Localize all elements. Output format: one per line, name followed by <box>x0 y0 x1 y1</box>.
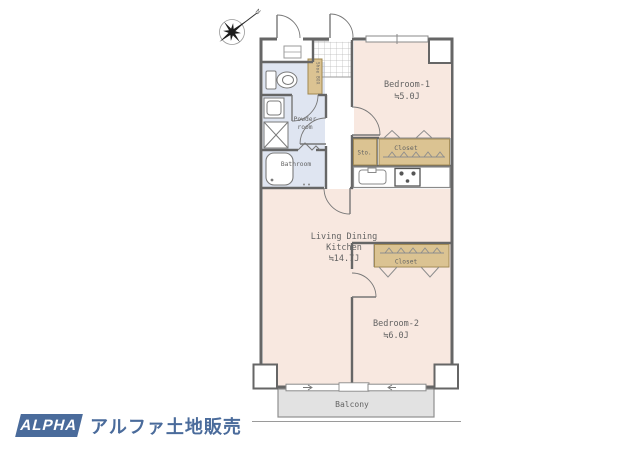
bedroom-2-label: Bedroom-2 <box>373 319 419 329</box>
washing-machine-icon <box>264 122 288 148</box>
bedroom-1-window <box>366 34 428 44</box>
company-name: アルファ土地販売 <box>90 413 242 439</box>
ldk-window <box>286 384 340 391</box>
storage-sto-label: Sto. <box>358 151 372 157</box>
ldk-label-1: Living Dining <box>311 232 378 242</box>
bedroom-2-window <box>368 384 426 391</box>
stove-icon <box>395 169 420 187</box>
alpha-logo-badge: ALPHA <box>15 414 83 437</box>
entrance-door-opening <box>329 36 352 42</box>
ldk-floor <box>263 189 451 386</box>
bathroom-label: Bathroom <box>281 161 312 168</box>
pillar-bottom-right <box>435 365 459 389</box>
balcony-label: Balcony <box>335 400 369 409</box>
pillar-bottom-left <box>254 365 278 389</box>
alpha-logo-text: ALPHA <box>19 417 80 434</box>
shoe-box: Shoe BOX <box>308 59 322 94</box>
bedroom-1-size: ≒5.0J <box>394 92 420 102</box>
entrance-door <box>330 14 353 38</box>
utility-door-opening <box>277 36 303 42</box>
closet-bedroom1 <box>379 139 450 165</box>
toilet-icon <box>266 71 297 89</box>
bedroom-1-label: Bedroom-1 <box>384 80 430 90</box>
pillar-top-right <box>429 40 452 64</box>
shoe-box-label: Shoe BOX <box>316 62 321 85</box>
powder-room-label-1: Powder <box>294 116 317 123</box>
kitchen-sink-icon <box>359 168 386 184</box>
ldk-size: ≒14.7J <box>329 254 360 264</box>
meter-box <box>284 46 301 58</box>
window-sill <box>339 383 369 391</box>
ldk-label-2: Kitchen <box>326 243 362 253</box>
sink-icon <box>264 98 284 118</box>
closet-bedroom1-label: Closet <box>394 144 418 152</box>
compass-icon: N <box>219 7 262 44</box>
floor-plan: N Balcony Shoe BOX <box>0 0 640 452</box>
floor-plan-page: N Balcony Shoe BOX <box>0 0 640 452</box>
bathtub-icon <box>266 153 293 185</box>
utility-door <box>277 15 300 38</box>
kitchen-counter <box>354 167 451 188</box>
closet-bedroom2-label: Closet <box>395 259 418 266</box>
powder-room-label-2: room <box>297 124 312 131</box>
bedroom-2-size: ≒6.0J <box>383 331 409 341</box>
balcony: Balcony <box>252 389 461 422</box>
